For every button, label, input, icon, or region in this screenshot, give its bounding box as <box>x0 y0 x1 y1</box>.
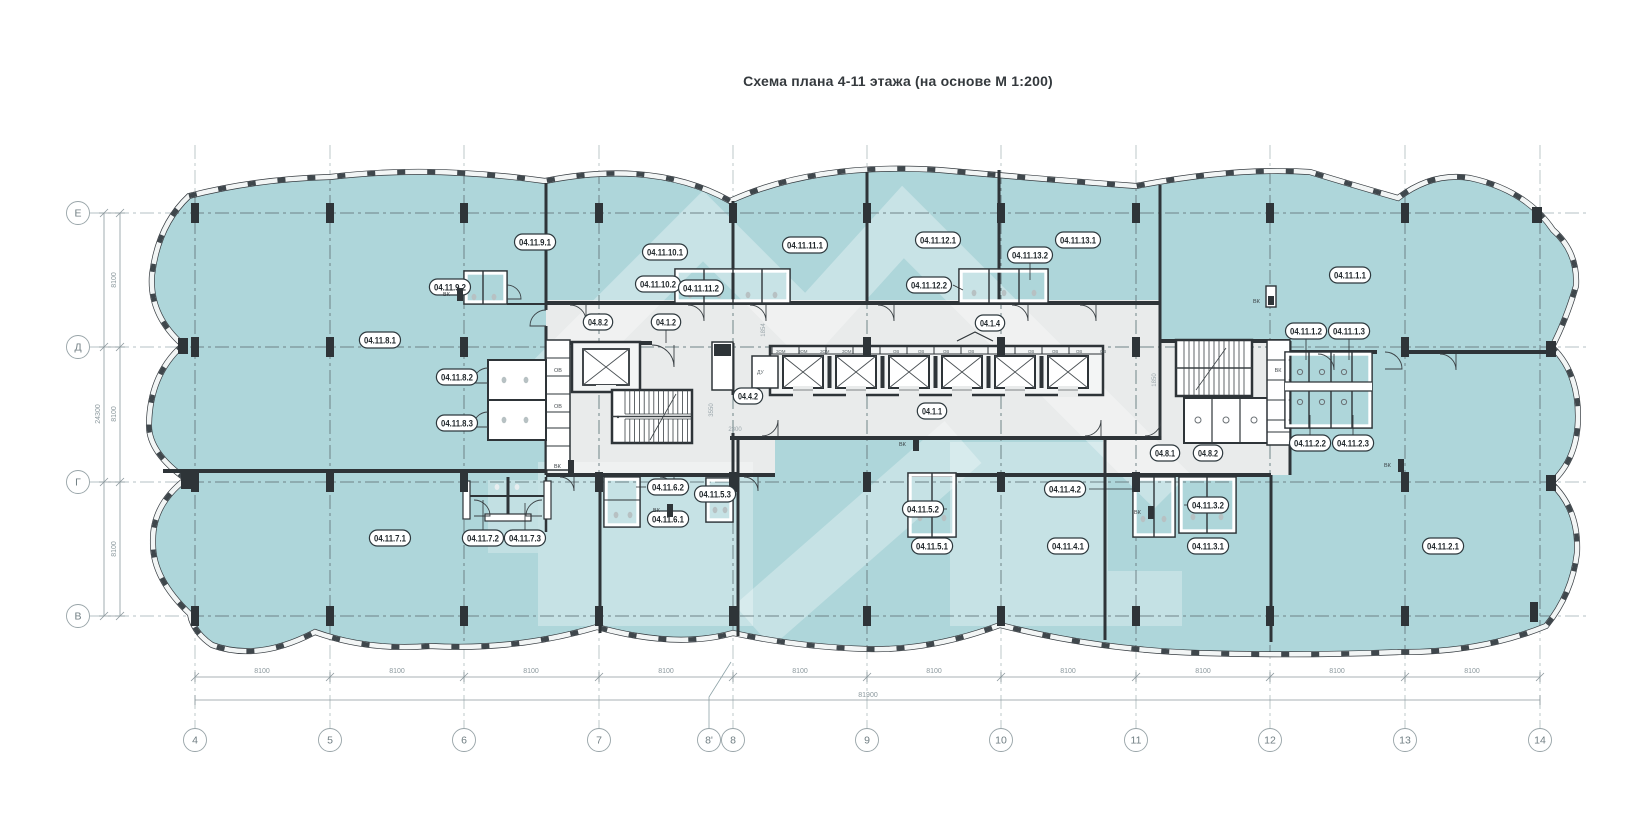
svg-text:ЗОМ: ЗОМ <box>798 349 808 354</box>
svg-text:ВК: ВК <box>443 292 451 298</box>
svg-text:04.11.11.2: 04.11.11.2 <box>683 283 719 293</box>
svg-text:04.11.9.1: 04.11.9.1 <box>519 237 551 247</box>
svg-text:04.1.4: 04.1.4 <box>980 318 1000 328</box>
svg-text:11: 11 <box>1131 735 1142 747</box>
svg-text:04.11.12.1: 04.11.12.1 <box>920 235 956 245</box>
svg-text:ВК: ВК <box>899 442 907 448</box>
svg-text:ЗОМ: ЗОМ <box>776 349 786 354</box>
svg-text:04.11.1.3: 04.11.1.3 <box>1333 326 1365 336</box>
svg-text:13: 13 <box>1399 735 1411 747</box>
svg-text:04.4.2: 04.4.2 <box>738 391 758 401</box>
svg-text:04.11.6.2: 04.11.6.2 <box>652 482 684 492</box>
svg-text:8100: 8100 <box>523 668 539 675</box>
svg-text:В: В <box>74 611 81 623</box>
svg-text:ДУ: ДУ <box>757 370 764 376</box>
svg-text:ОВ: ОВ <box>1076 349 1082 354</box>
svg-text:ВК: ВК <box>1384 463 1392 469</box>
svg-text:04.1.1: 04.1.1 <box>922 406 942 416</box>
svg-text:ВК: ВК <box>653 508 661 514</box>
svg-text:8100: 8100 <box>111 272 118 288</box>
svg-text:8': 8' <box>705 735 713 747</box>
svg-text:04.11.7.3: 04.11.7.3 <box>509 533 541 543</box>
svg-text:04.11.10.2: 04.11.10.2 <box>640 279 676 289</box>
svg-text:04.8.2: 04.8.2 <box>1198 448 1218 458</box>
svg-text:04.11.1.2: 04.11.1.2 <box>1290 326 1322 336</box>
svg-text:04.11.8.2: 04.11.8.2 <box>441 372 473 382</box>
svg-text:ОВ: ОВ <box>1100 349 1106 354</box>
svg-text:8100: 8100 <box>1464 668 1480 675</box>
svg-text:81900: 81900 <box>858 692 878 699</box>
svg-text:1850: 1850 <box>1152 373 1158 387</box>
svg-text:ОВ: ОВ <box>1052 349 1058 354</box>
svg-text:ВК: ВК <box>1253 299 1261 305</box>
svg-text:04.11.5.1: 04.11.5.1 <box>916 541 948 551</box>
svg-text:8100: 8100 <box>389 668 405 675</box>
svg-text:04.8.1: 04.8.1 <box>1155 448 1175 458</box>
svg-text:9: 9 <box>864 735 870 747</box>
svg-text:Г: Г <box>75 477 81 489</box>
svg-text:ВК: ВК <box>554 464 562 470</box>
svg-text:ОВ: ОВ <box>554 368 562 374</box>
svg-text:04.11.12.2: 04.11.12.2 <box>911 280 947 290</box>
svg-text:10: 10 <box>995 735 1007 747</box>
svg-text:ОВ: ОВ <box>968 349 974 354</box>
svg-text:Е: Е <box>74 208 81 220</box>
svg-text:5: 5 <box>327 735 333 747</box>
svg-text:ВК: ВК <box>1134 510 1142 516</box>
svg-text:3550: 3550 <box>709 403 715 417</box>
svg-text:Схема плана 4-11 этажа (на осн: Схема плана 4-11 этажа (на основе М 1:20… <box>743 73 1053 89</box>
svg-text:04.11.7.2: 04.11.7.2 <box>467 533 499 543</box>
svg-text:8100: 8100 <box>1060 668 1076 675</box>
svg-text:8: 8 <box>730 735 736 747</box>
svg-text:ЗОМ: ЗОМ <box>820 349 830 354</box>
svg-text:8100: 8100 <box>1195 668 1211 675</box>
svg-text:04.11.1.1: 04.11.1.1 <box>1334 270 1366 280</box>
svg-text:04.1.2: 04.1.2 <box>656 317 676 327</box>
svg-text:14: 14 <box>1534 735 1546 747</box>
svg-text:04.11.2.1: 04.11.2.1 <box>1427 541 1459 551</box>
svg-text:8100: 8100 <box>926 668 942 675</box>
svg-text:04.11.5.3: 04.11.5.3 <box>699 489 731 499</box>
svg-text:Д: Д <box>74 342 81 354</box>
svg-text:8100: 8100 <box>111 541 118 557</box>
svg-text:7: 7 <box>596 735 602 747</box>
svg-text:04.11.4.2: 04.11.4.2 <box>1049 484 1081 494</box>
svg-text:1854: 1854 <box>761 323 767 337</box>
svg-text:ВК: ВК <box>1275 368 1283 374</box>
svg-text:ОВ: ОВ <box>918 349 924 354</box>
svg-text:04.11.8.3: 04.11.8.3 <box>441 418 473 428</box>
svg-text:ЗОМ: ЗОМ <box>842 349 852 354</box>
svg-text:24300: 24300 <box>95 404 102 424</box>
svg-text:04.11.7.1: 04.11.7.1 <box>374 533 406 543</box>
svg-text:8100: 8100 <box>792 668 808 675</box>
svg-text:04.11.2.3: 04.11.2.3 <box>1337 438 1369 448</box>
svg-text:04.11.2.2: 04.11.2.2 <box>1294 438 1326 448</box>
svg-text:6: 6 <box>461 735 467 747</box>
svg-text:ОВ: ОВ <box>943 349 949 354</box>
svg-text:ОВ: ОВ <box>1028 349 1034 354</box>
svg-text:ОВ: ОВ <box>893 349 899 354</box>
svg-text:12: 12 <box>1264 735 1276 747</box>
svg-text:ОВ: ОВ <box>554 404 562 410</box>
svg-text:04.11.11.1: 04.11.11.1 <box>787 240 823 250</box>
svg-text:4: 4 <box>192 735 198 747</box>
svg-text:8100: 8100 <box>658 668 674 675</box>
svg-text:04.8.2: 04.8.2 <box>588 317 608 327</box>
svg-text:2300: 2300 <box>728 427 742 433</box>
svg-text:8100: 8100 <box>1329 668 1345 675</box>
svg-text:04.11.5.2: 04.11.5.2 <box>907 504 939 514</box>
svg-text:8100: 8100 <box>254 668 270 675</box>
svg-text:04.11.8.1: 04.11.8.1 <box>364 335 396 345</box>
svg-text:04.11.3.1: 04.11.3.1 <box>1192 541 1224 551</box>
svg-text:8100: 8100 <box>111 406 118 422</box>
svg-text:04.11.13.2: 04.11.13.2 <box>1012 250 1048 260</box>
svg-text:04.11.13.1: 04.11.13.1 <box>1060 235 1096 245</box>
svg-text:04.11.10.1: 04.11.10.1 <box>647 247 683 257</box>
svg-text:04.11.4.1: 04.11.4.1 <box>1052 541 1084 551</box>
svg-text:04.11.3.2: 04.11.3.2 <box>1192 500 1224 510</box>
